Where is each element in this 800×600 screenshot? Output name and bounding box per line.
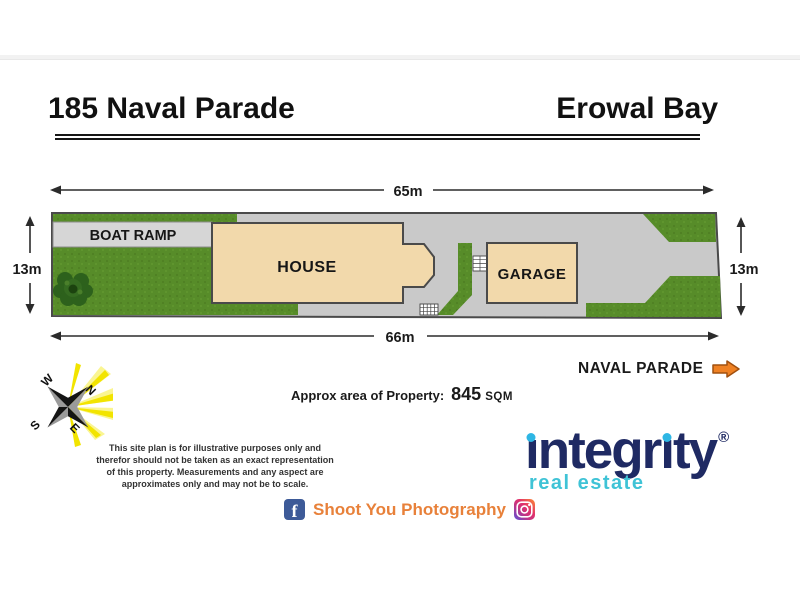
compass-rose: W N S E — [23, 360, 113, 455]
dim-top-arrowhead-right — [703, 186, 714, 195]
compass-letter-s: S — [27, 417, 43, 433]
house-label: HOUSE — [277, 259, 336, 276]
stairs-house — [420, 304, 438, 315]
disclaimer-line: This site plan is for illustrative purpo… — [74, 443, 356, 455]
site-plan: BOAT RAMP HOUSE GARAGE 65m 66m 13m — [0, 165, 800, 360]
integrity-wordmark: ıntegrıty® — [525, 424, 765, 477]
garage-label: GARAGE — [498, 266, 567, 283]
compass-letter-e: E — [67, 420, 83, 436]
dim-right-arrowhead-top — [737, 217, 746, 227]
disclaimer-line: therefor should not be taken as an exact… — [74, 455, 356, 467]
compass-letter-w: W — [38, 371, 56, 389]
photography-credit: Shoot You Photography — [313, 500, 506, 520]
facebook-icon: f — [284, 499, 305, 520]
photography-credit-row: f Shoot You Photography — [284, 499, 535, 520]
street-direction-arrow-icon — [712, 360, 740, 378]
area-prefix: Approx area of Property: — [291, 388, 444, 403]
registered-mark: ® — [718, 429, 729, 446]
disclaimer-line: of this property. Measurements and any a… — [74, 467, 356, 479]
street-callout: NAVAL PARADE — [578, 360, 740, 378]
page-seam — [0, 55, 800, 60]
instagram-icon — [514, 499, 535, 520]
dim-left-arrowhead-bottom — [26, 304, 35, 314]
area-unit: SQM — [485, 391, 513, 403]
street-name-label: NAVAL PARADE — [578, 360, 703, 378]
dim-left-label: 13m — [12, 262, 41, 278]
dim-left-arrowhead-top — [26, 216, 35, 226]
dim-top-arrowhead-left — [50, 186, 61, 195]
disclaimer-text: This site plan is for illustrative purpo… — [74, 443, 356, 491]
dim-right-arrowhead-bottom — [737, 306, 746, 316]
disclaimer-line: approximates only and may not be to scal… — [74, 479, 356, 491]
page-title-suburb: Erowal Bay — [556, 92, 718, 126]
area-value: 845 — [451, 384, 481, 405]
boat-ramp-label: BOAT RAMP — [90, 228, 177, 244]
integrity-logo: ıntegrıty® real estate — [525, 424, 765, 495]
area-text: Approx area of Property: 845 SQM — [291, 384, 513, 405]
dim-bottom-arrowhead-left — [50, 332, 61, 341]
stairs-garage — [473, 256, 487, 271]
page-title-address: 185 Naval Parade — [48, 92, 295, 126]
dim-right-label: 13m — [729, 262, 758, 278]
title-underline — [55, 134, 700, 140]
dim-bottom-arrowhead-right — [708, 332, 719, 341]
grass-top-strip — [53, 214, 237, 222]
dim-top-label: 65m — [393, 184, 422, 200]
dim-bottom-label: 66m — [385, 330, 414, 346]
facebook-f: f — [292, 503, 298, 520]
